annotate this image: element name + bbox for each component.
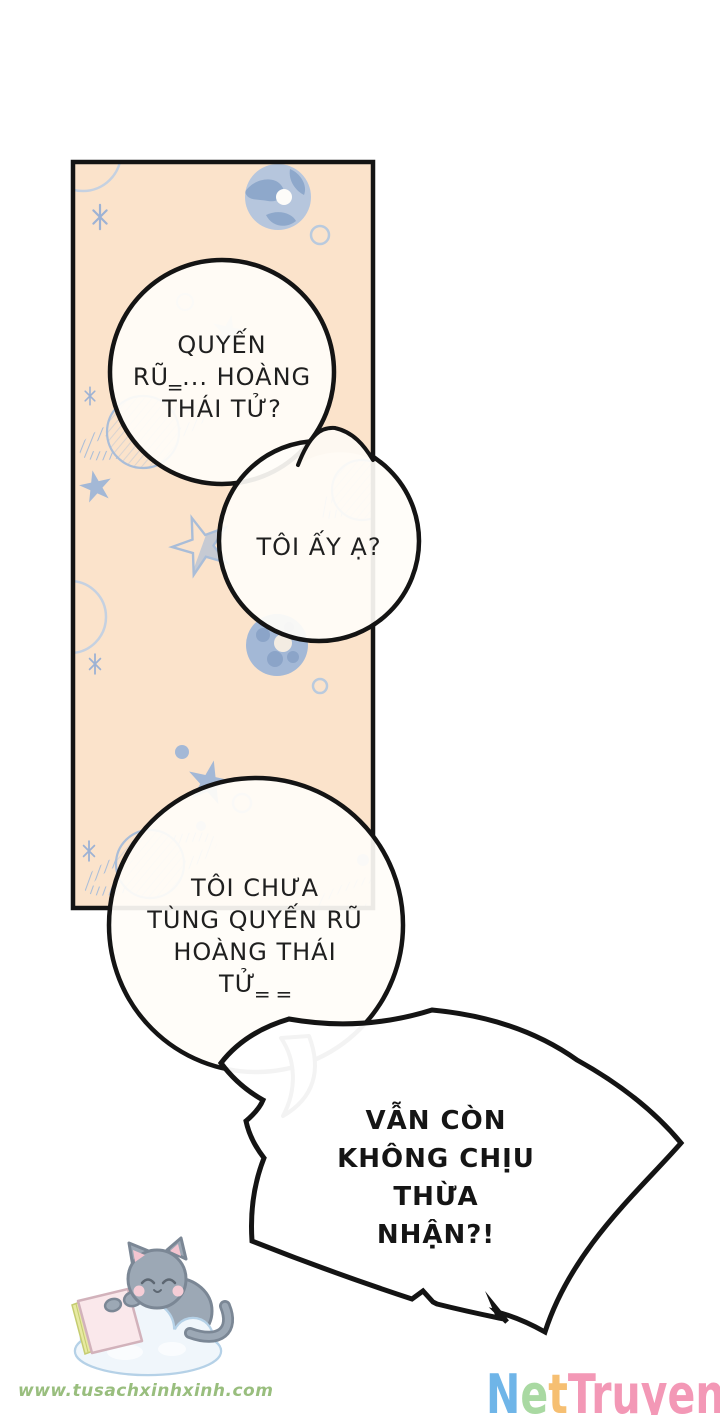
nettruyen-logo: NetTruyen — [486, 1368, 720, 1415]
dot-doodle — [175, 745, 189, 759]
burst-bubble-shape — [221, 1010, 681, 1332]
site-url-watermark: www.tusachxinhxinh.com — [18, 1381, 256, 1401]
comic-page: QUYẾN RŨ‗... HOÀNG THÁI TỬ? TÔI ẤY Ạ? TÔ… — [0, 0, 720, 1415]
comic-artwork — [0, 0, 720, 1415]
cat-logo — [72, 1238, 228, 1374]
earth-doodle — [245, 164, 311, 230]
